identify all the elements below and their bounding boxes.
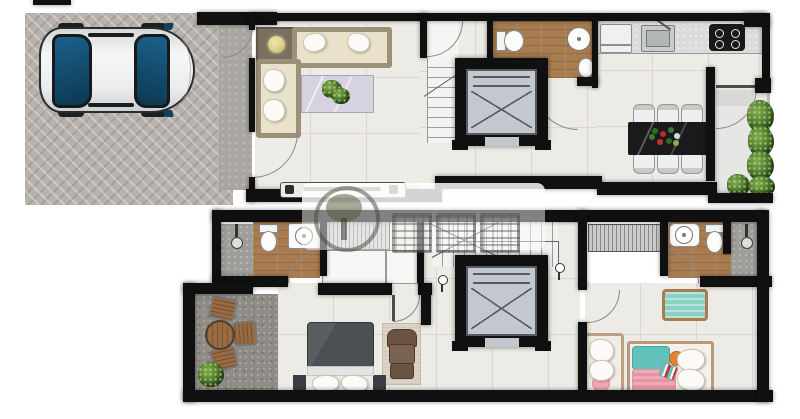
wall — [212, 210, 221, 280]
master-bed — [307, 322, 372, 394]
changing-table — [662, 289, 708, 321]
elevator-upper — [455, 58, 548, 146]
toilet-upper — [496, 29, 523, 51]
dining-chair — [633, 104, 655, 124]
armchair-ottoman — [390, 363, 414, 379]
car-rear-window — [52, 34, 92, 108]
coffee-table-plant — [332, 88, 350, 104]
dining-chair — [657, 104, 679, 124]
floor-plan-canvas — [0, 0, 800, 419]
dining-chair — [681, 104, 703, 124]
stair-direction-arrow — [555, 263, 565, 273]
armchair — [387, 329, 415, 377]
car — [38, 26, 196, 114]
elevator-foot — [452, 341, 468, 351]
burner — [715, 40, 724, 49]
stair-arrow-stem — [441, 284, 443, 292]
cabinet-divider — [385, 251, 387, 283]
elevator-cab — [466, 266, 537, 336]
kids-wardrobe — [588, 224, 662, 252]
wall — [757, 210, 769, 402]
sink-upper — [567, 27, 591, 51]
table-lamp — [266, 34, 287, 55]
wall — [660, 222, 668, 276]
speaker — [285, 185, 294, 194]
wall — [183, 390, 773, 402]
bedroom-door-leaf — [392, 295, 395, 321]
car-side-glass — [88, 33, 134, 37]
burner — [731, 29, 740, 38]
shower-head-icon — [741, 237, 753, 249]
cooktop — [709, 24, 745, 51]
elevator-x-mark — [471, 91, 531, 128]
wall — [420, 13, 427, 58]
elevator-door — [485, 137, 519, 146]
terrace-plant — [198, 362, 224, 387]
sofa-pillow — [261, 97, 287, 124]
stair-arrow-stem — [558, 272, 560, 280]
terrace-table — [205, 320, 235, 350]
dining-table — [628, 122, 708, 155]
elevator-foot — [452, 140, 468, 150]
wall — [255, 13, 765, 21]
wall — [421, 285, 431, 325]
elevator-x-mark — [471, 288, 531, 329]
car-windshield — [134, 34, 170, 108]
wardrobe-cabinet — [322, 250, 420, 284]
elevator-cab — [466, 69, 537, 135]
watermark-glyph — [480, 213, 520, 253]
wall — [577, 77, 598, 86]
toilet-bowl — [504, 30, 524, 52]
bed-sheet-fold — [307, 366, 374, 376]
watermark-glyph — [436, 213, 476, 253]
car-mirror — [163, 110, 174, 117]
burner — [715, 29, 724, 38]
wall — [183, 283, 195, 402]
sink-basin — [646, 30, 670, 47]
shower-arm — [745, 224, 748, 237]
car-side-glass — [88, 103, 134, 107]
elevator-panel — [473, 273, 531, 284]
wall — [708, 193, 773, 203]
wall — [578, 210, 587, 285]
elevator-door — [485, 338, 519, 347]
fridge-door-line — [601, 44, 631, 46]
balcony-door-leaf — [716, 85, 756, 88]
wall — [249, 58, 255, 132]
sofa-top — [292, 27, 392, 68]
shower-head-icon — [231, 237, 243, 249]
toilet-right — [704, 224, 724, 253]
toilet-bowl — [260, 231, 277, 252]
wall — [183, 283, 253, 294]
shower-arm — [235, 224, 238, 237]
sofa-pillow — [301, 31, 328, 55]
corner-side-table — [256, 27, 295, 62]
kids-pillow — [676, 367, 706, 392]
wall — [578, 322, 587, 395]
car-mirror — [163, 23, 174, 30]
sofa-left — [256, 59, 301, 138]
wall — [33, 0, 71, 5]
watermark-tree-trunk — [341, 218, 347, 240]
stair-direction-arrow — [438, 275, 448, 285]
sofa-pillow — [345, 31, 372, 55]
dining-chair — [657, 154, 679, 174]
terrace-chair — [232, 320, 258, 347]
daybed-bench — [584, 333, 624, 397]
elevator-lower — [455, 255, 548, 347]
elevator-foot — [535, 341, 551, 351]
sink-right — [675, 226, 693, 244]
wall — [706, 67, 715, 181]
elevator-foot — [535, 140, 551, 150]
armchair-seat — [389, 344, 415, 364]
wall — [318, 283, 392, 295]
wall — [723, 222, 731, 254]
wall — [755, 78, 771, 93]
dining-chair — [681, 154, 703, 174]
nightstand — [373, 375, 386, 391]
elevator-panel — [473, 76, 531, 87]
dining-centerpiece-flowers — [652, 128, 658, 134]
watermark-glyph — [392, 213, 432, 253]
wall — [597, 182, 717, 195]
fridge — [600, 24, 632, 53]
wall — [249, 13, 255, 30]
kitchen-sink — [641, 25, 675, 52]
nightstand — [293, 375, 306, 391]
toilet-bowl — [706, 231, 723, 253]
wall — [762, 16, 770, 86]
wall — [578, 283, 587, 290]
dining-chair — [633, 154, 655, 174]
sofa-pillow — [261, 67, 287, 93]
burner — [731, 40, 740, 49]
toilet-left — [257, 224, 278, 252]
